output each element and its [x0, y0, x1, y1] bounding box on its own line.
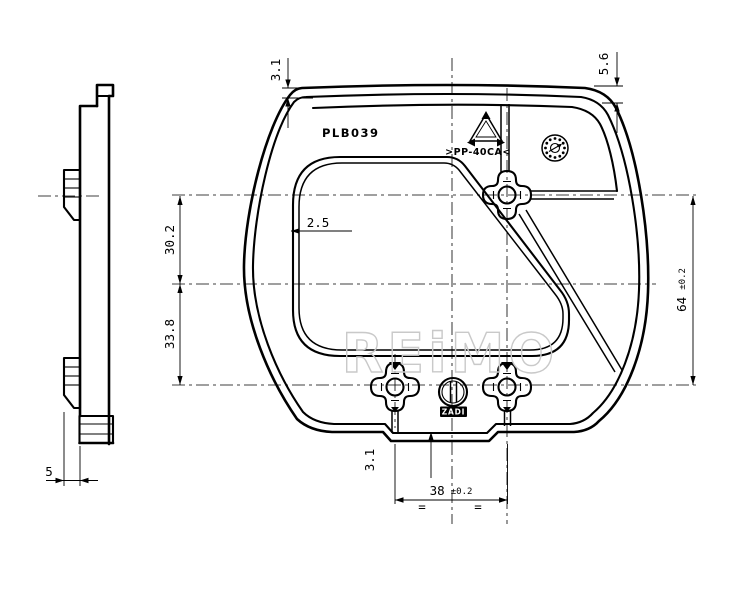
- part-number-label: PLB039: [322, 126, 380, 140]
- equal-mark-right: =: [474, 499, 482, 514]
- dim-spacing-value: 38: [430, 483, 445, 498]
- dim-text-rim-top: 3.1: [268, 59, 283, 82]
- dim-overall-tol: ±0.2: [678, 268, 688, 290]
- dimension-left-spans: 30.2 33.8: [162, 196, 183, 385]
- watermark-text: REiMO: [342, 322, 559, 385]
- dim-text-profile-thickness: 5: [45, 464, 53, 479]
- dim-text-top-right: 5.6: [596, 53, 611, 76]
- material-marking-label: >PP-40CA<: [445, 147, 511, 158]
- dim-text-lower-span: 33.8: [162, 319, 177, 349]
- dimension-tab-offset: 3.1: [362, 432, 434, 478]
- equal-mark-left: =: [418, 499, 426, 514]
- recycling-triangle-icon: [467, 111, 505, 147]
- outer-outline: [244, 85, 648, 441]
- dim-overall-value: 64: [674, 297, 689, 312]
- dimension-overall-height: 64 ±0.2: [671, 196, 696, 385]
- mold-date-wheel-icon: [542, 135, 568, 161]
- dimension-hole-spacing: 38 ±0.2 = =: [395, 444, 508, 514]
- technical-drawing-sheet: PLB039 >PP-40CA<: [0, 0, 731, 600]
- dim-text-upper-span: 30.2: [162, 225, 177, 255]
- front-view: PLB039 >PP-40CA<: [244, 85, 648, 441]
- brand-label: ZADI: [442, 408, 465, 417]
- dim-text-tab-offset: 3.1: [362, 449, 377, 472]
- dim-text-spacing: 38 ±0.2: [430, 480, 473, 499]
- drawing-svg: PLB039 >PP-40CA<: [0, 0, 731, 600]
- dim-text-wall: 2.5: [307, 215, 330, 230]
- dim-text-overall: 64 ±0.2: [671, 268, 690, 312]
- side-profile-view: [64, 85, 113, 444]
- dimension-profile-thickness: 5: [45, 412, 98, 486]
- dimension-wall-thickness: 2.5: [291, 215, 352, 234]
- dim-spacing-tol: ±0.2: [451, 487, 473, 497]
